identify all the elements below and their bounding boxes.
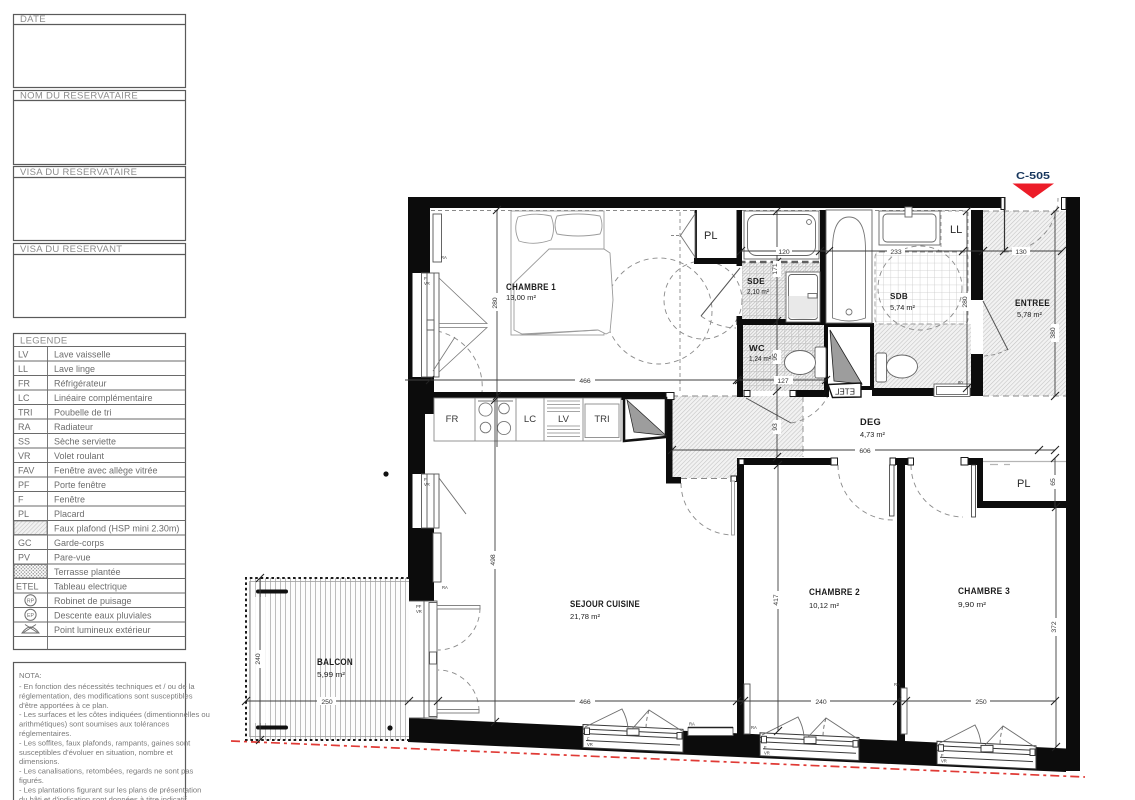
svg-text:- En fonction des nécessités t: - En fonction des nécessités techniques … <box>19 682 195 691</box>
svg-text:5,74 m²: 5,74 m² <box>890 303 916 312</box>
svg-text:Radiateur: Radiateur <box>54 422 93 432</box>
svg-text:EP: EP <box>27 613 34 619</box>
svg-text:PV: PV <box>18 553 30 563</box>
svg-text:BALCON: BALCON <box>317 657 353 668</box>
svg-text:- Les canalisations, retombées: - Les canalisations, retombées, regards … <box>19 767 194 776</box>
svg-text:Sèche serviette: Sèche serviette <box>54 437 116 447</box>
svg-text:PF: PF <box>18 480 30 490</box>
svg-text:280: 280 <box>492 297 499 309</box>
svg-text:Garde-corps: Garde-corps <box>54 538 105 548</box>
svg-text:- Les plantations figurant sur: - Les plantations figurant sur les plans… <box>19 785 201 794</box>
svg-text:Réfrigérateur: Réfrigérateur <box>54 379 107 389</box>
svg-text:120: 120 <box>778 249 790 256</box>
svg-text:372: 372 <box>1051 621 1058 633</box>
svg-text:PL: PL <box>704 230 717 242</box>
svg-text:RP: RP <box>27 599 35 605</box>
svg-text:DEG: DEG <box>860 417 881 428</box>
svg-text:21,78 m²: 21,78 m² <box>570 612 601 621</box>
svg-text:2,10 m²: 2,10 m² <box>747 287 770 296</box>
svg-text:171: 171 <box>772 263 779 275</box>
svg-text:PL: PL <box>1017 478 1030 490</box>
svg-text:DATE: DATE <box>20 14 46 25</box>
svg-text:arithmétiques) sont soumises a: arithmétiques) sont soumises aux toléran… <box>19 720 169 729</box>
svg-text:Linéaire complémentaire: Linéaire complémentaire <box>54 393 153 403</box>
svg-text:130: 130 <box>1015 249 1027 256</box>
svg-text:233: 233 <box>890 249 902 256</box>
svg-text:RA: RA <box>894 682 900 687</box>
svg-text:Descente eaux pluviales: Descente eaux pluviales <box>54 611 152 621</box>
svg-text:SDB: SDB <box>890 291 908 301</box>
svg-text:ENTREE: ENTREE <box>1015 298 1050 309</box>
svg-text:F: F <box>18 495 24 505</box>
svg-text:SS: SS <box>18 437 30 447</box>
svg-text:réglementation, des modificati: réglementation, des modifications sont s… <box>19 691 193 700</box>
svg-text:Volet roulant: Volet roulant <box>54 451 105 461</box>
svg-text:95: 95 <box>772 353 779 361</box>
svg-text:RA: RA <box>442 585 448 590</box>
svg-text:RA: RA <box>689 722 695 727</box>
svg-text:F: F <box>587 737 590 742</box>
svg-text:LC: LC <box>524 414 536 425</box>
svg-text:1,24 m²: 1,24 m² <box>749 354 772 363</box>
svg-text:VR: VR <box>424 482 430 487</box>
svg-text:Porte fenêtre: Porte fenêtre <box>54 480 106 490</box>
svg-text:Lave linge: Lave linge <box>54 364 95 374</box>
svg-text:RA: RA <box>751 725 757 730</box>
svg-text:417: 417 <box>773 594 780 606</box>
svg-text:127: 127 <box>777 378 789 385</box>
svg-text:TRI: TRI <box>594 414 609 425</box>
svg-text:Placard: Placard <box>54 509 85 519</box>
svg-text:susceptibles d'évoluer en situ: susceptibles d'évoluer en situation, nom… <box>19 748 174 757</box>
svg-text:240: 240 <box>255 653 262 665</box>
svg-text:RA: RA <box>18 422 31 432</box>
svg-text:Faux plafond (HSP mini 2.30m): Faux plafond (HSP mini 2.30m) <box>54 524 179 534</box>
svg-text:240: 240 <box>815 699 827 706</box>
svg-text:4,73 m²: 4,73 m² <box>860 430 886 439</box>
svg-text:LEGENDE: LEGENDE <box>20 336 68 347</box>
svg-text:VISA DU RESERVATAIRE: VISA DU RESERVATAIRE <box>20 167 137 178</box>
svg-text:SDE: SDE <box>747 276 765 286</box>
svg-text:5,78 m²: 5,78 m² <box>1017 310 1043 319</box>
svg-text:- Les surfaces et les côtes in: - Les surfaces et les côtes indiquées (d… <box>19 710 210 719</box>
svg-text:Fenêtre: Fenêtre <box>54 495 85 505</box>
svg-text:CHAMBRE 3: CHAMBRE 3 <box>958 586 1010 597</box>
svg-text:466: 466 <box>579 378 591 385</box>
svg-text:Poubelle de tri: Poubelle de tri <box>54 408 112 418</box>
svg-text:VR: VR <box>941 759 947 764</box>
svg-text:- Les soffites, faux plafonds,: - Les soffites, faux plafonds, rampants,… <box>19 738 191 747</box>
svg-text:13,00 m²: 13,00 m² <box>506 293 537 302</box>
svg-text:VR: VR <box>424 281 430 286</box>
svg-text:65: 65 <box>1050 478 1057 486</box>
svg-text:FR: FR <box>446 414 459 425</box>
svg-text:RA: RA <box>441 255 447 260</box>
svg-text:LL: LL <box>18 364 28 374</box>
svg-text:F: F <box>764 745 767 750</box>
svg-text:CHAMBRE 2: CHAMBRE 2 <box>809 587 860 598</box>
svg-text:NOTA:: NOTA: <box>19 671 42 680</box>
svg-text:réglementaires.: réglementaires. <box>19 729 71 738</box>
svg-text:Point lumineux extérieur: Point lumineux extérieur <box>54 625 151 635</box>
svg-text:du bâti et d'indication sont d: du bâti et d'indication sont données à t… <box>19 795 189 800</box>
svg-text:figurés.: figurés. <box>19 776 44 785</box>
svg-text:dimensions.: dimensions. <box>19 757 60 766</box>
svg-text:9,90 m²: 9,90 m² <box>958 600 987 609</box>
svg-text:Lave vaisselle: Lave vaisselle <box>54 350 111 360</box>
svg-text:NOM DU RESERVATAIRE: NOM DU RESERVATAIRE <box>20 90 138 101</box>
svg-text:d'être apportées à ce plan.: d'être apportées à ce plan. <box>19 701 109 710</box>
svg-text:280: 280 <box>962 296 969 308</box>
svg-text:80: 80 <box>958 380 963 385</box>
svg-text:LL: LL <box>950 224 962 236</box>
svg-text:FR: FR <box>18 379 30 389</box>
svg-text:PL: PL <box>18 509 29 519</box>
svg-text:VISA DU RESERVANT: VISA DU RESERVANT <box>20 244 122 255</box>
svg-text:LV: LV <box>558 414 570 425</box>
svg-text:CHAMBRE 1: CHAMBRE 1 <box>506 282 556 293</box>
svg-text:VR: VR <box>587 742 593 747</box>
svg-text:498: 498 <box>490 554 497 566</box>
svg-text:466: 466 <box>579 699 591 706</box>
svg-text:LC: LC <box>18 393 30 403</box>
svg-text:C-505: C-505 <box>1016 171 1051 182</box>
svg-text:GC: GC <box>18 538 32 548</box>
svg-text:250: 250 <box>321 699 333 706</box>
svg-text:5,99 m²: 5,99 m² <box>317 670 346 679</box>
svg-text:LV: LV <box>18 350 28 360</box>
svg-text:10,12 m²: 10,12 m² <box>809 601 840 610</box>
svg-text:FAV: FAV <box>18 466 34 476</box>
svg-text:TRI: TRI <box>18 408 33 418</box>
svg-text:F: F <box>941 753 944 758</box>
svg-text:606: 606 <box>859 448 871 455</box>
svg-text:93: 93 <box>772 423 779 431</box>
svg-text:Terrasse plantée: Terrasse plantée <box>54 567 121 577</box>
svg-text:VR: VR <box>764 750 770 755</box>
svg-text:ETEL: ETEL <box>16 582 39 592</box>
svg-text:Robinet de puisage: Robinet de puisage <box>54 596 132 606</box>
svg-text:250: 250 <box>975 699 987 706</box>
svg-text:WC: WC <box>749 343 765 353</box>
svg-text:Pare-vue: Pare-vue <box>54 553 91 563</box>
svg-text:Tableau electrique: Tableau electrique <box>54 582 127 592</box>
svg-text:380: 380 <box>1050 327 1057 339</box>
svg-text:SEJOUR CUISINE: SEJOUR CUISINE <box>570 599 640 610</box>
svg-text:VR: VR <box>18 451 31 461</box>
svg-text:Fenêtre avec allège vitrée: Fenêtre avec allège vitrée <box>54 466 158 476</box>
svg-text:ETEL: ETEL <box>834 388 855 397</box>
svg-text:VR: VR <box>416 609 422 614</box>
